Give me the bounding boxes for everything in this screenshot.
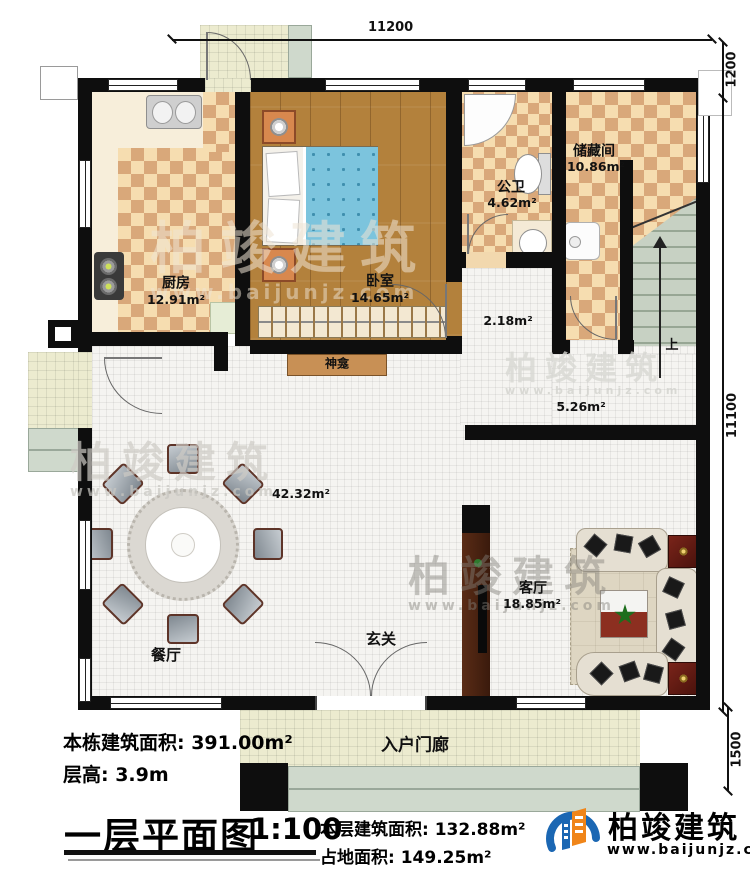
window-dining-left-2	[79, 658, 91, 702]
door-leaf-side-porch	[104, 357, 162, 359]
bed	[262, 146, 378, 246]
opening-bedroom-door	[446, 282, 462, 336]
window-bedroom-top	[325, 79, 420, 91]
title-underline-thick	[64, 850, 316, 855]
wall-bedroom-bottom	[250, 340, 462, 354]
label-bath-area: 4.62m²	[487, 196, 536, 210]
column-marker	[48, 320, 78, 348]
top-porch-step	[288, 25, 312, 78]
wall-kitchen-bedroom	[235, 78, 250, 346]
label-living-area: 18.85m²	[503, 597, 561, 611]
window-storage-right	[697, 115, 709, 183]
label-kitchen-area: 12.91m²	[147, 293, 205, 307]
window-dining-left-1	[79, 520, 91, 590]
sofa-pillow	[619, 661, 641, 683]
sofa-top	[576, 528, 668, 572]
window-kitchen-top	[108, 79, 178, 91]
opening-side-porch	[78, 352, 92, 428]
pillow-1	[266, 151, 301, 197]
building-total-area: 本栋建筑面积: 391.00m²	[63, 728, 293, 755]
wall-storage-stairs	[620, 160, 633, 354]
sofa-pillow	[589, 661, 613, 685]
water-heater	[564, 222, 600, 260]
sofa-pillow	[643, 663, 664, 684]
lamp-top	[270, 118, 288, 136]
floor-plan-canvas: 柏竣建筑 www.baijunjz.com 柏竣建筑 www.baijunjz.…	[0, 0, 750, 878]
tv-wall-plant	[474, 559, 482, 567]
opening-storage-door	[570, 340, 618, 354]
nightstand-top	[262, 110, 296, 144]
dim-line-right-mid	[722, 98, 724, 712]
side-table-lamp	[679, 547, 688, 556]
lamp-bottom	[270, 256, 288, 274]
dim-right-top-label: 1200	[725, 51, 740, 87]
label-entry-porch: 入户门廊	[381, 737, 449, 756]
opening-bath-door	[466, 252, 506, 268]
sofa-pillow	[638, 535, 661, 558]
label-shrine: 神龛	[325, 357, 349, 370]
nightstand-bottom	[262, 248, 296, 282]
entry-porch-column-left	[240, 763, 288, 811]
label-dining: 餐厅	[151, 647, 181, 664]
dining-chair	[167, 614, 199, 644]
window-kitchen-left	[79, 160, 91, 228]
kitchen-sink	[146, 95, 202, 129]
sofa-bottom	[576, 652, 668, 696]
dining-table-center	[171, 533, 195, 557]
label-living: 客厅	[519, 581, 547, 596]
brand-logo-svg	[538, 796, 604, 862]
bed-duvet	[303, 147, 378, 245]
wall-tv-cap	[462, 505, 490, 533]
label-storage: 储藏间	[573, 144, 615, 159]
kitchen-entry-tile	[203, 92, 235, 152]
opening-entry-door	[315, 696, 427, 710]
door-leaf-bath	[467, 214, 469, 254]
label-foyer: 玄关	[366, 631, 396, 648]
tv	[478, 585, 487, 653]
kitchen-cooktop	[94, 252, 124, 300]
sink-basin-right	[175, 101, 196, 124]
footprint-area: 占地面积: 149.25m²	[320, 843, 491, 868]
door-leaf-storage	[615, 296, 617, 340]
brand-logo-icon	[538, 796, 604, 862]
label-hall-area: 5.26m²	[556, 400, 605, 414]
dim-right-mid-label: 11100	[725, 393, 740, 438]
cooktop-burner-1	[100, 258, 117, 275]
label-bedroom: 卧室	[366, 274, 394, 289]
label-kitchen: 厨房	[162, 276, 190, 291]
water-heater-knob	[569, 236, 581, 248]
window-storage-top	[573, 79, 645, 91]
label-great-area: 42.32m²	[272, 487, 330, 501]
dining-chair	[167, 444, 199, 474]
brand-site: www.baijunjz.com	[607, 842, 750, 858]
extension-box-topleft	[40, 66, 78, 100]
label-hall-small-area: 2.18m²	[483, 314, 532, 328]
floor-height: 层高: 3.9m	[63, 760, 169, 787]
side-table-lamp	[679, 674, 688, 683]
side-table-bottom	[668, 662, 698, 695]
stairs-arrow-head	[653, 236, 667, 248]
wall-kitchen-bottom	[78, 332, 217, 346]
window-bath-top	[468, 79, 526, 91]
tv-wall	[462, 533, 490, 696]
label-storage-area: 10.86m²	[567, 160, 625, 174]
sink-basin-left	[152, 101, 173, 124]
label-bath: 公卫	[497, 180, 525, 195]
stairs-arrow-line	[659, 246, 661, 378]
pillow-2	[266, 198, 300, 244]
sofa-pillow	[584, 534, 608, 558]
dim-right-bottom-label: 1500	[730, 731, 745, 767]
corridor-small-floor	[460, 268, 552, 425]
window-living-bottom	[516, 697, 586, 709]
sofa-pillow	[662, 576, 685, 599]
wall-bath-storage	[552, 78, 566, 354]
coffee-table	[600, 590, 648, 638]
door-leaf-bedroom	[445, 284, 447, 338]
label-bedroom-area: 14.65m²	[351, 291, 409, 305]
sofa-pillow	[614, 534, 634, 554]
brand-name: 柏竣建筑	[608, 803, 740, 847]
floor-area: 本层建筑面积: 132.88m²	[320, 815, 525, 840]
title-underline-thin	[68, 859, 320, 861]
dining-chair	[253, 528, 283, 560]
dim-line-top	[172, 39, 712, 41]
wall-living-top	[465, 425, 710, 440]
opening-top-porch-door	[205, 78, 251, 92]
wall-porch-stub	[214, 332, 228, 371]
side-table-top	[668, 535, 698, 568]
entry-porch-step-1	[288, 766, 640, 789]
window-dining-bottom	[110, 697, 222, 709]
plant	[614, 604, 636, 626]
dim-top-label: 11200	[368, 20, 413, 35]
cooktop-burner-2	[100, 278, 117, 295]
corridor-floor	[552, 354, 696, 425]
label-stairs-up: 上	[665, 339, 678, 353]
sofa-pillow	[665, 609, 686, 630]
